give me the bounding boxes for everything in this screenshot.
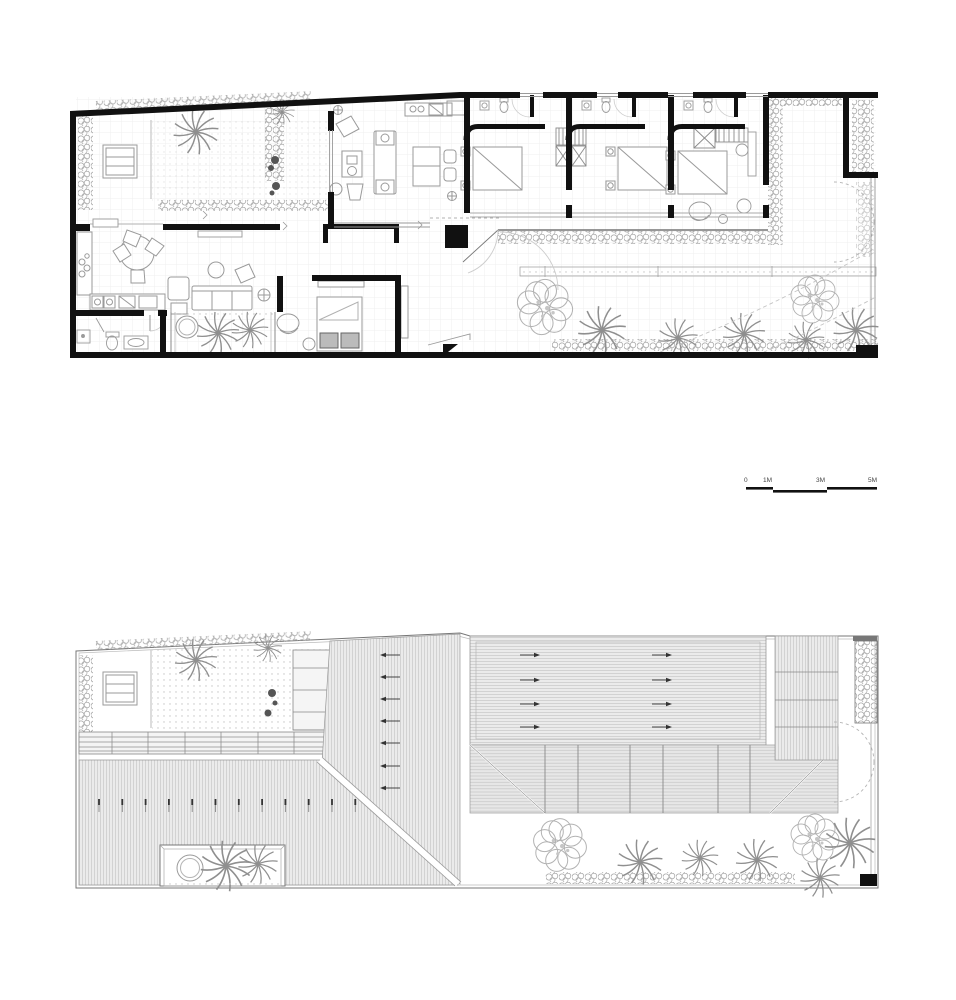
palm-tree (825, 818, 875, 868)
armchair (168, 277, 189, 300)
palm-tree (800, 858, 839, 897)
hedge-row (498, 231, 768, 244)
roof-right-plane (470, 636, 766, 745)
scale-segment (773, 490, 827, 493)
daybed (103, 672, 137, 705)
daybed-sofa (374, 131, 396, 194)
wall-bottom (70, 352, 878, 358)
scale-segment (827, 487, 877, 490)
roof-left-courtyard (79, 631, 330, 754)
gate (834, 722, 874, 802)
master-bed (317, 297, 362, 351)
scale-bar: 0 1M 3M 5M (744, 477, 877, 493)
wall-left (70, 111, 76, 358)
chair (347, 184, 363, 200)
tub-patio (171, 312, 275, 354)
shrub-border (545, 872, 795, 884)
gravel-path (520, 266, 876, 277)
plan-sheet: 0 1M 3M 5M (0, 0, 956, 1000)
tv-console (318, 281, 364, 287)
sofa (192, 286, 252, 310)
wall-block (860, 874, 877, 886)
roof-planter (855, 641, 877, 723)
scale-label-3m: 3M (816, 477, 825, 484)
louver-band-horizontal (79, 732, 330, 754)
shrub-border (552, 339, 878, 351)
roof-skylight-opening (160, 841, 285, 891)
garden-tree (534, 819, 587, 872)
chair (444, 168, 456, 181)
scale-label-5m: 5M (868, 477, 877, 484)
louver-band-vertical (293, 650, 330, 730)
shelf (401, 286, 408, 338)
roof-plan (76, 631, 878, 897)
palm-tree (682, 840, 718, 876)
scale-segment (746, 487, 773, 490)
chair (444, 150, 456, 163)
hedge-row (158, 200, 328, 211)
dining-chair (131, 270, 145, 283)
hedge-row (768, 95, 783, 245)
daybed (103, 145, 137, 178)
floor-plan (70, 91, 878, 358)
desk (748, 132, 756, 176)
scale-label-0: 0 (744, 477, 748, 484)
plan-sheet-svg: 0 1M 3M 5M (0, 0, 956, 1000)
scale-label-1m: 1M (763, 477, 772, 484)
